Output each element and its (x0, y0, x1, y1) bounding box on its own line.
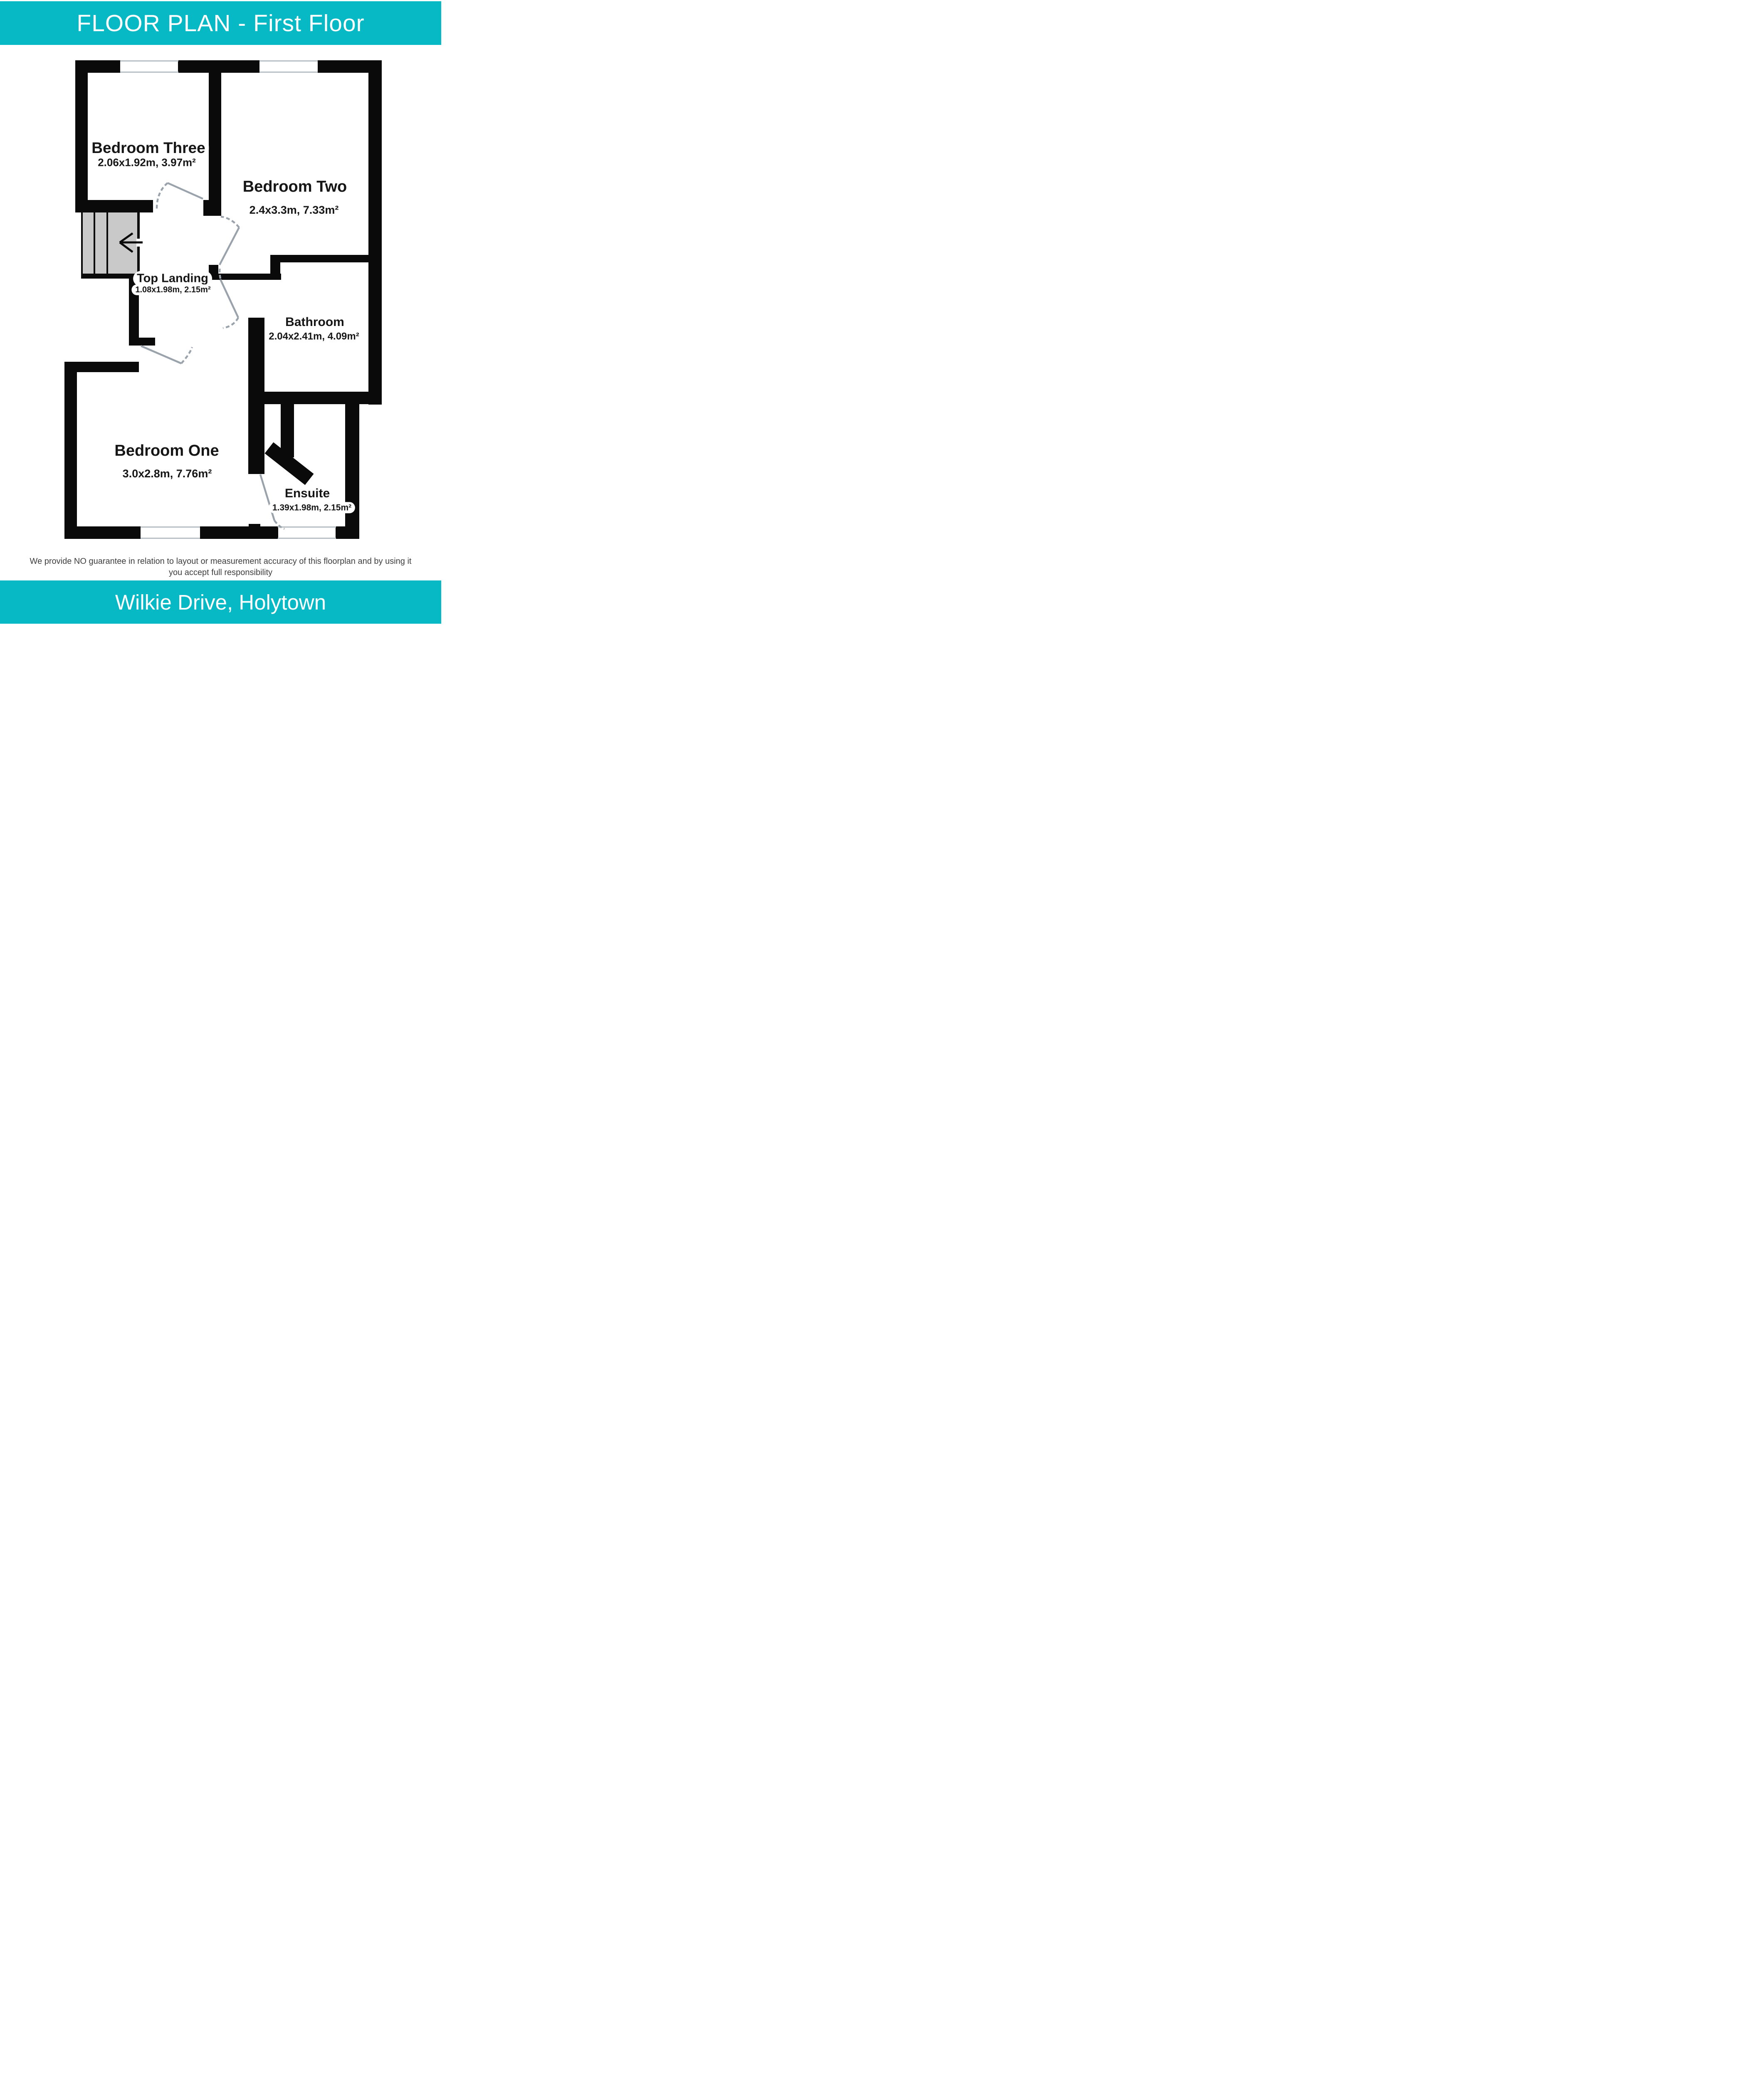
address-banner: Wilkie Drive, Holytown (0, 580, 441, 624)
window-bed1-line (141, 538, 200, 539)
room-label-bedroom-three: Bedroom Three (88, 138, 209, 158)
window-bed2-line (259, 72, 318, 73)
staircase-tread-1 (94, 212, 95, 274)
wall-bath-top (270, 255, 382, 262)
wall-bed3-bottom (75, 200, 153, 212)
disclaimer-text: We provide NO guarantee in relation to l… (0, 556, 441, 578)
window-bed1-line (141, 526, 200, 528)
title-banner: FLOOR PLAN - First Floor (0, 1, 441, 45)
door-arc-bedroom-three (157, 183, 203, 209)
stairs-arrow-wall-gap (136, 239, 141, 247)
room-label-bedroom-one: Bedroom One (111, 441, 222, 461)
page-title: FLOOR PLAN - First Floor (77, 10, 364, 37)
room-dims-bedroom-one: 3.0x2.8m, 7.76m² (119, 467, 216, 481)
door-arc-bedroom-one (141, 346, 192, 363)
wall-left-upper (75, 60, 88, 212)
room-label-top-landing: Top Landing (133, 271, 212, 286)
room-dims-top-landing: 1.08x1.98m, 2.15m² (131, 284, 214, 295)
staircase (83, 212, 137, 274)
property-address: Wilkie Drive, Holytown (115, 590, 326, 615)
wall-bed3-bed2 (209, 73, 221, 200)
staircase-left-edge (81, 212, 83, 274)
wall-left-lower (64, 362, 77, 539)
wall-bath-left-lower (248, 318, 264, 474)
room-dims-ensuite: 1.39x1.98m, 2.15m² (269, 502, 355, 513)
door-arc-bedroom-two (220, 217, 239, 265)
room-dims-bathroom: 2.04x2.41m, 4.09m² (265, 331, 363, 343)
wall-bottom-2 (200, 526, 278, 539)
wall-bed1-top (64, 362, 139, 372)
wall-top-2 (178, 60, 259, 73)
window-bed3-line (120, 72, 178, 73)
wall-ensuite-door-nub (249, 524, 260, 527)
floorplan-page: FLOOR PLAN - First Floor (0, 0, 441, 624)
wall-stub-bed1-door (138, 338, 155, 346)
room-dims-bedroom-three: 2.06x1.92m, 3.97m² (94, 156, 200, 169)
window-bed2-line (259, 60, 318, 62)
wall-ensuite-recess (281, 402, 294, 457)
wall-stairs-bottom (81, 273, 140, 279)
wall-stub-bed3-door (203, 200, 221, 216)
room-dims-bedroom-two: 2.4x3.3m, 7.33m² (246, 203, 343, 217)
disclaimer-line-1: We provide NO guarantee in relation to l… (0, 556, 441, 567)
window-bed3-line (120, 60, 178, 62)
room-label-bedroom-two: Bedroom Two (239, 177, 351, 197)
wall-right-outer (368, 60, 382, 405)
room-label-bathroom: Bathroom (282, 314, 348, 330)
room-label-ensuite: Ensuite (281, 486, 334, 501)
window-ensuite-line (278, 526, 336, 528)
disclaimer-line-2: you accept full responsibility (0, 567, 441, 578)
window-ensuite-line (278, 538, 336, 539)
wall-ensuite-right (345, 402, 359, 539)
staircase-tread-2 (106, 212, 108, 274)
wall-bottom-3 (336, 526, 359, 539)
floor-plan-canvas: Bedroom Three 2.06x1.92m, 3.97m² Bedroom… (0, 0, 441, 624)
